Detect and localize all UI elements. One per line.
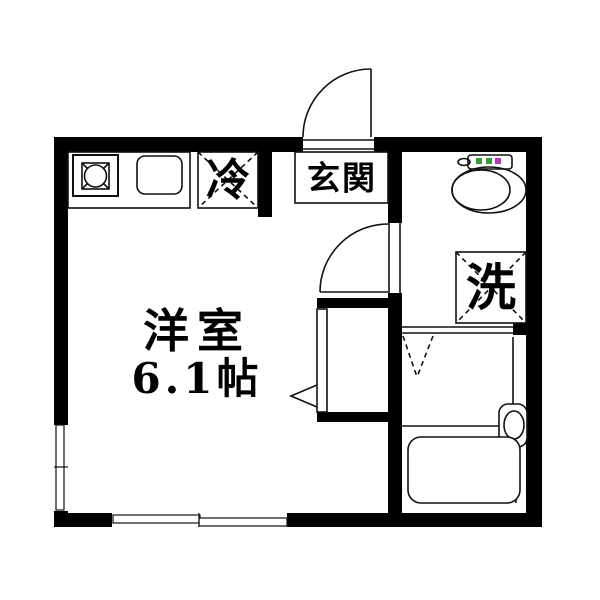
main-room-area: 6.1帖 (131, 358, 262, 400)
entrance-label: 玄関 (307, 162, 377, 195)
washbasin-icon (499, 404, 527, 447)
main-room-name: 洋室 (143, 308, 251, 354)
folding-door-marker (403, 336, 433, 377)
wall-right (526, 137, 542, 527)
wall-threshold-stub (513, 323, 526, 335)
refrigerator-label: 冷 (206, 159, 250, 203)
entrance-opening (303, 137, 374, 152)
wall-kitchen-stub (258, 152, 272, 217)
washroom-partition-lines (402, 337, 516, 503)
window-bottom-opening (112, 513, 287, 527)
wall-center-upper (388, 152, 402, 223)
kitchen-sink-icon (137, 156, 182, 194)
closet-wall-bottom (317, 412, 388, 422)
entrance-door-icon (303, 69, 371, 137)
closet-wall-top (317, 298, 388, 308)
toilet-icon (452, 155, 526, 213)
washing-machine-label: 洗 (466, 263, 516, 313)
floor-plan: 洋室 6.1帖 玄関 冷 洗 (0, 0, 600, 600)
gas-stove-icon (73, 155, 118, 196)
wall-top-left (54, 137, 303, 152)
window-left-opening (54, 425, 68, 511)
wall-top-right (374, 137, 542, 152)
wall-center-lower (388, 293, 402, 513)
kitchen-counter (68, 152, 190, 208)
washroom-threshold (402, 325, 513, 335)
closet-door-icon (291, 309, 327, 412)
toilet-door-opening (388, 223, 402, 293)
bathtub-icon (408, 437, 520, 503)
